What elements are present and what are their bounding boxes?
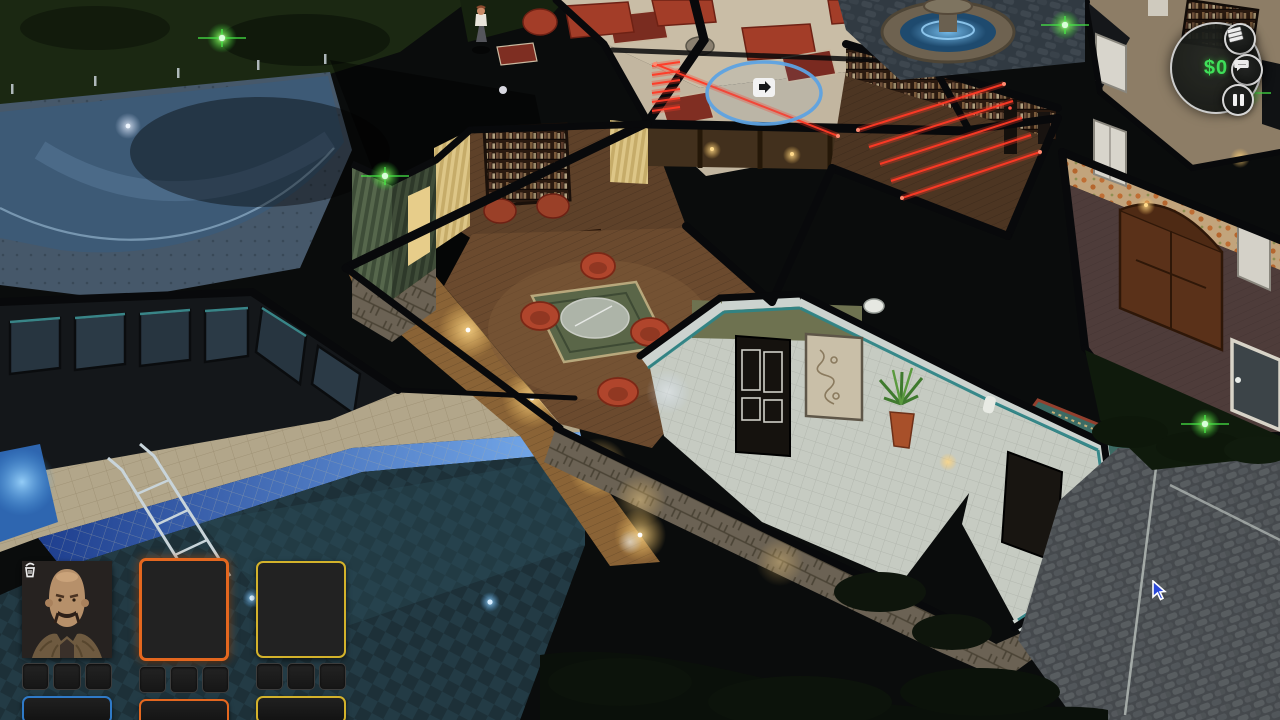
inventory-slots — [139, 666, 229, 693]
money-stack-icon — [1226, 25, 1244, 43]
inventory-slot[interactable] — [202, 666, 229, 693]
inventory-slots — [22, 663, 112, 690]
drop-item-button[interactable] — [22, 696, 112, 720]
inventory-slot[interactable] — [85, 663, 112, 690]
chat-bubble-icon — [1233, 56, 1251, 74]
exit-icon — [753, 78, 775, 97]
inventory-slots — [256, 663, 346, 690]
portrait-bald-man[interactable] — [256, 561, 346, 658]
portrait-afro-woman[interactable] — [139, 558, 229, 661]
party-member-2 — [139, 561, 229, 720]
drop-item-button[interactable] — [139, 699, 229, 720]
party-member-3 — [256, 561, 346, 720]
pause-icon — [1233, 94, 1244, 106]
trash-bin-icon — [22, 561, 38, 578]
party-panel — [22, 561, 346, 720]
inventory-slot[interactable] — [319, 663, 346, 690]
pause-button[interactable] — [1222, 84, 1254, 116]
inventory-slot[interactable] — [256, 663, 283, 690]
inventory-slot[interactable] — [287, 663, 314, 690]
loot-log-button[interactable] — [1224, 23, 1256, 55]
inventory-slot[interactable] — [53, 663, 80, 690]
drop-item-button[interactable] — [256, 696, 346, 720]
objective-marker[interactable] — [707, 62, 821, 124]
inventory-slot[interactable] — [170, 666, 197, 693]
messages-button[interactable] — [1231, 54, 1263, 86]
inventory-slot[interactable] — [139, 666, 166, 693]
inventory-slot[interactable] — [22, 663, 49, 690]
money-amount: $0 — [1204, 57, 1228, 80]
game-screen: $0 — [0, 0, 1280, 720]
